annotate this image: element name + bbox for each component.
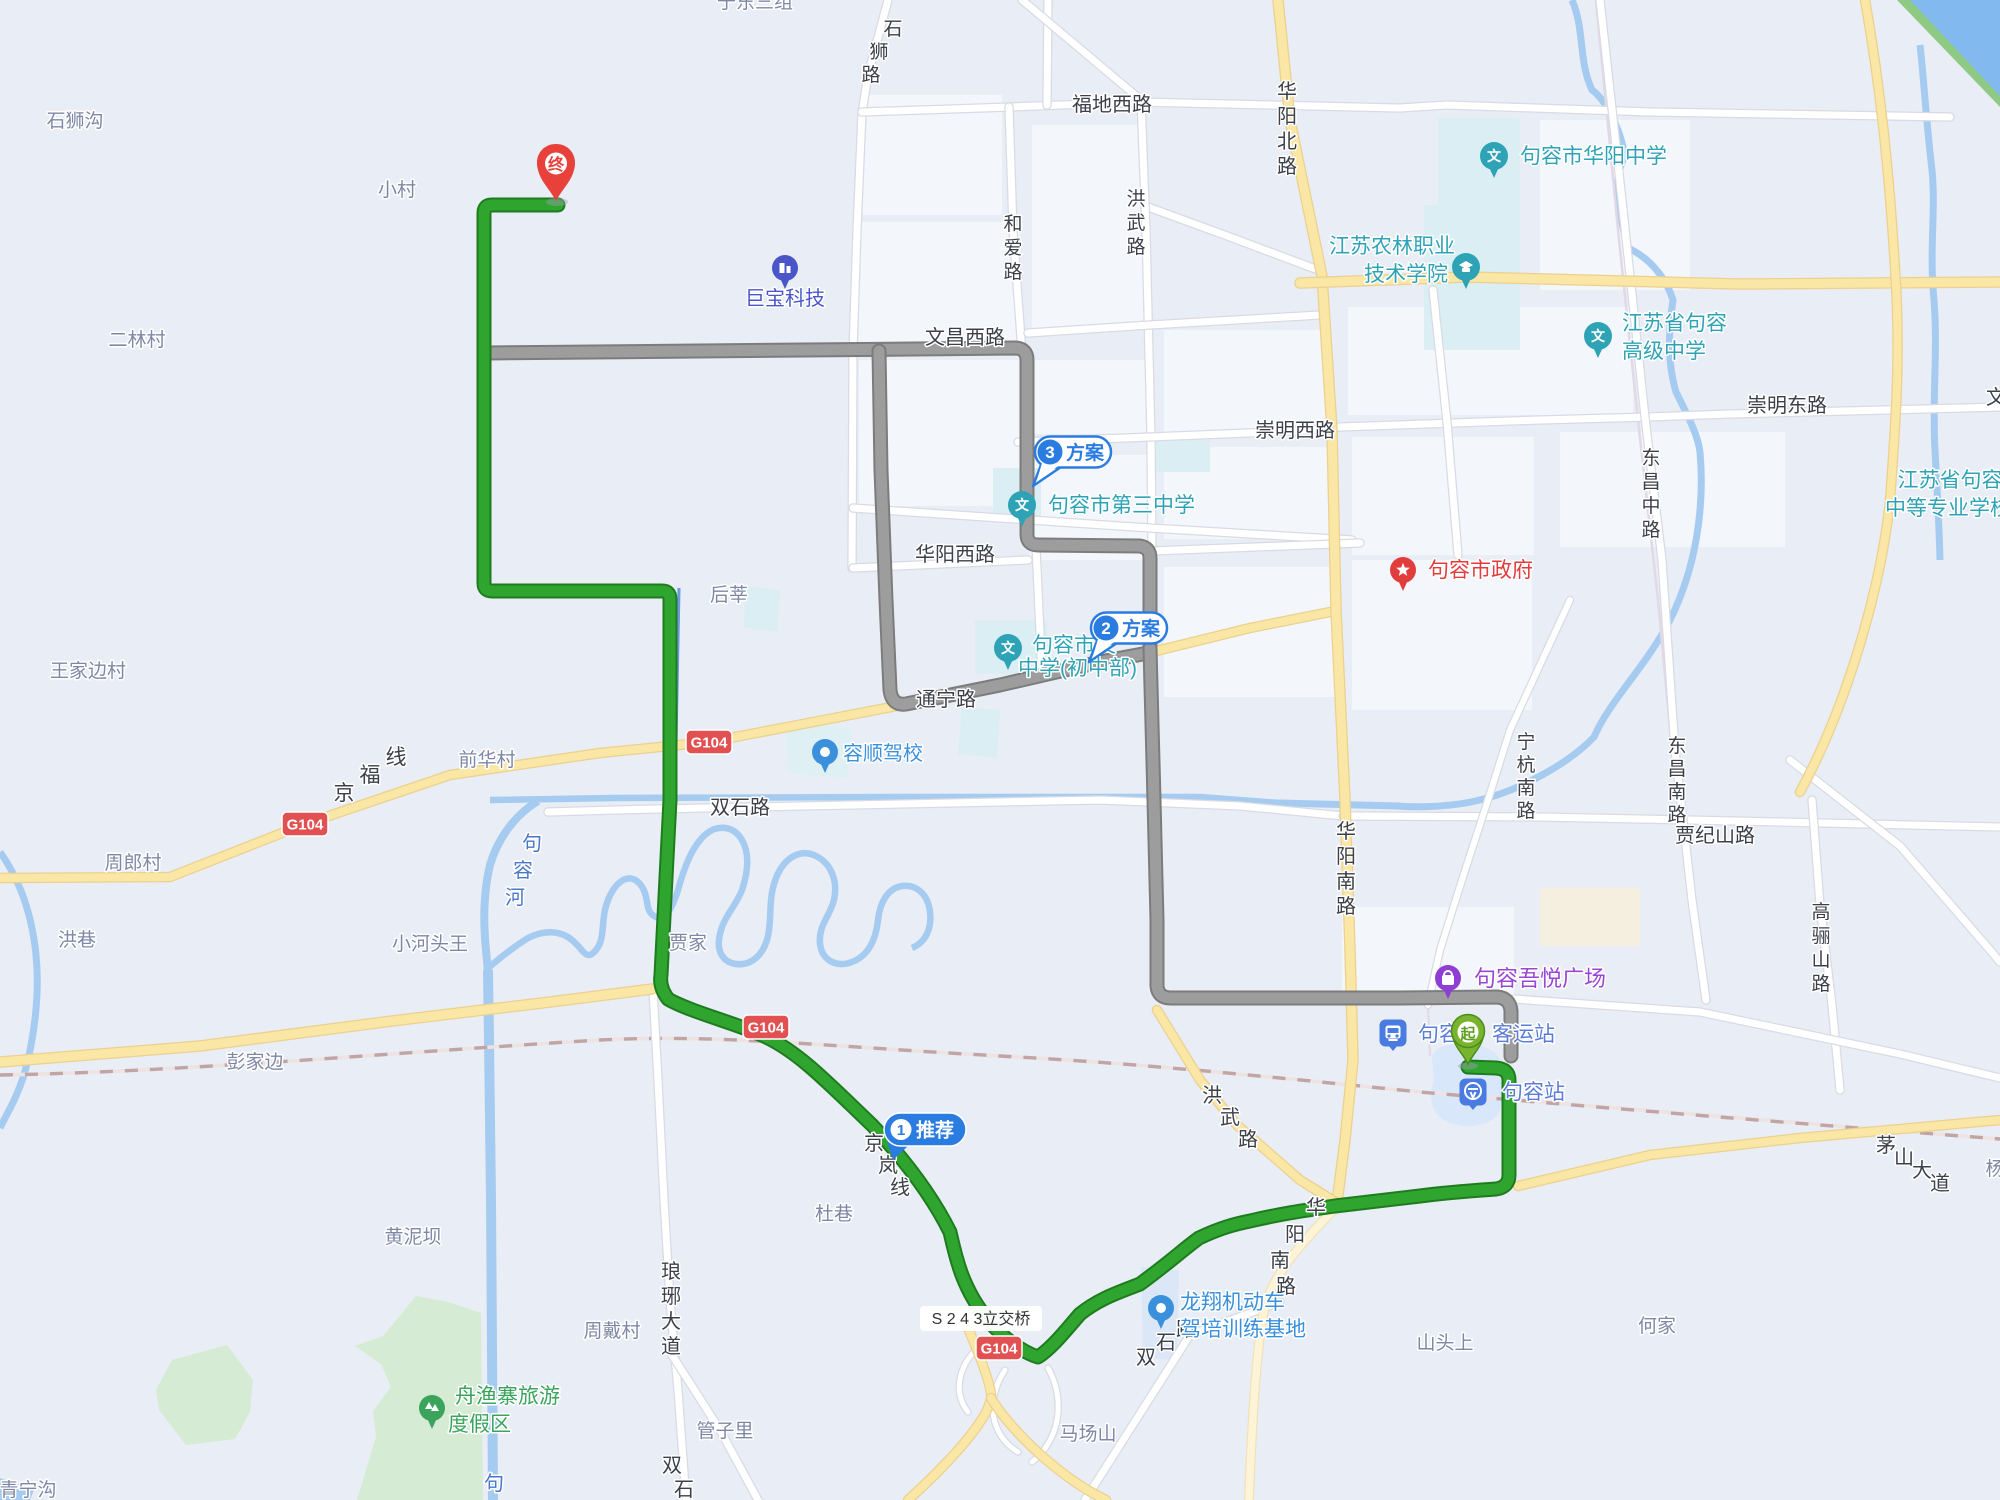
- svg-text:客运站: 客运站: [1492, 1023, 1555, 1046]
- svg-text:石狮沟: 石狮沟: [46, 110, 103, 132]
- svg-text:巨宝科技: 巨宝科技: [745, 287, 825, 310]
- svg-text:线: 线: [386, 746, 407, 769]
- svg-text:路: 路: [1126, 236, 1145, 258]
- svg-text:北: 北: [1277, 130, 1297, 153]
- svg-text:阳: 阳: [1336, 845, 1356, 868]
- svg-text:江苏省句容: 江苏省句容: [1898, 469, 2000, 492]
- svg-text:方案: 方案: [1122, 617, 1161, 640]
- svg-text:道: 道: [1930, 1172, 1950, 1195]
- svg-text:大: 大: [1912, 1159, 1932, 1182]
- svg-text:洪巷: 洪巷: [58, 929, 96, 951]
- svg-text:福: 福: [360, 764, 381, 787]
- svg-text:阳: 阳: [1285, 1223, 1305, 1246]
- svg-text:路: 路: [1238, 1128, 1258, 1151]
- svg-text:文昌西路: 文昌西路: [925, 326, 1005, 349]
- svg-text:马场山: 马场山: [1059, 1423, 1116, 1445]
- svg-text:中学(初中部): 中学(初中部): [1018, 657, 1137, 680]
- svg-text:昌: 昌: [1667, 759, 1686, 780]
- svg-text:中等专业学校: 中等专业学校: [1885, 497, 2000, 520]
- svg-text:后莘: 后莘: [710, 584, 748, 606]
- svg-text:路: 路: [1667, 804, 1686, 826]
- svg-text:华: 华: [1306, 1196, 1326, 1219]
- svg-text:和: 和: [1003, 213, 1022, 235]
- svg-text:洪: 洪: [1126, 188, 1145, 210]
- svg-text:华: 华: [1336, 820, 1356, 843]
- svg-text:山: 山: [1894, 1146, 1914, 1169]
- svg-text:文: 文: [1986, 386, 2000, 409]
- svg-text:王家边村: 王家边村: [50, 660, 126, 682]
- svg-text:技术学院: 技术学院: [1364, 263, 1448, 286]
- svg-text:双: 双: [1136, 1347, 1156, 1369]
- svg-text:昌: 昌: [1641, 472, 1660, 493]
- svg-text:崇明东路: 崇明东路: [1747, 394, 1827, 417]
- svg-text:石: 石: [883, 19, 902, 40]
- svg-text:南: 南: [1336, 870, 1356, 893]
- svg-text:山: 山: [1811, 949, 1830, 971]
- svg-text:洪: 洪: [1202, 1084, 1222, 1107]
- svg-text:路: 路: [1003, 261, 1022, 283]
- svg-text:华阳西路: 华阳西路: [915, 543, 995, 566]
- svg-text:高: 高: [1811, 901, 1830, 923]
- svg-text:文: 文: [1015, 497, 1030, 513]
- svg-text:句: 句: [522, 832, 542, 855]
- svg-text:双石路: 双石路: [710, 796, 770, 819]
- svg-text:琅: 琅: [661, 1260, 681, 1283]
- svg-text:推荐: 推荐: [916, 1119, 954, 1142]
- svg-text:句容吾悦广场: 句容吾悦广场: [1474, 966, 1606, 991]
- svg-text:2: 2: [1101, 619, 1110, 638]
- svg-text:句: 句: [484, 1472, 504, 1495]
- svg-text:黄泥坝: 黄泥坝: [384, 1226, 441, 1248]
- svg-text:终: 终: [548, 155, 565, 174]
- svg-text:石: 石: [1156, 1332, 1176, 1354]
- svg-text:3: 3: [1045, 443, 1054, 462]
- svg-text:G104: G104: [981, 1341, 1018, 1358]
- svg-text:南: 南: [1270, 1249, 1290, 1272]
- svg-text:崇明西路: 崇明西路: [1255, 419, 1335, 442]
- svg-text:路: 路: [1277, 155, 1297, 178]
- svg-text:双: 双: [662, 1455, 682, 1477]
- svg-text:骊: 骊: [1811, 926, 1830, 947]
- svg-text:线: 线: [890, 1176, 910, 1199]
- svg-text:南: 南: [1667, 781, 1686, 803]
- svg-text:文: 文: [1487, 148, 1502, 164]
- svg-text:句容市华阳中学: 句容市华阳中学: [1520, 145, 1667, 168]
- svg-text:大: 大: [661, 1310, 681, 1333]
- svg-text:山头上: 山头上: [1416, 1332, 1473, 1354]
- svg-text:路: 路: [1516, 800, 1535, 822]
- svg-text:度假区: 度假区: [448, 1413, 511, 1436]
- svg-text:路: 路: [861, 64, 880, 86]
- svg-text:周郎村: 周郎村: [104, 852, 161, 874]
- svg-text:中: 中: [1641, 495, 1660, 517]
- svg-text:句容市政府: 句容市政府: [1428, 559, 1533, 582]
- svg-text:琊: 琊: [661, 1285, 681, 1308]
- svg-text:华: 华: [1277, 80, 1297, 103]
- svg-text:道: 道: [661, 1335, 681, 1358]
- svg-text:东: 东: [1667, 735, 1686, 757]
- svg-text:管子里: 管子里: [696, 1420, 753, 1442]
- svg-text:彭家边: 彭家边: [226, 1051, 283, 1073]
- svg-text:南: 南: [1516, 777, 1535, 799]
- svg-text:爱: 爱: [1003, 237, 1022, 259]
- svg-text:周戴村: 周戴村: [583, 1320, 640, 1342]
- svg-text:阳: 阳: [1277, 105, 1297, 128]
- svg-text:福地西路: 福地西路: [1072, 93, 1152, 116]
- svg-text:江苏农林职业: 江苏农林职业: [1329, 235, 1455, 258]
- svg-text:江苏省句容: 江苏省句容: [1622, 312, 1727, 335]
- svg-text:二林村: 二林村: [108, 329, 165, 351]
- svg-text:G104: G104: [287, 817, 324, 834]
- svg-text:G104: G104: [691, 735, 728, 752]
- svg-text:武: 武: [1220, 1106, 1240, 1129]
- svg-text:容: 容: [513, 859, 533, 882]
- svg-text:贾家: 贾家: [669, 932, 707, 954]
- svg-text:高级中学: 高级中学: [1622, 340, 1706, 363]
- svg-text:句容站: 句容站: [1502, 1081, 1565, 1104]
- svg-text:小河头王: 小河头王: [392, 933, 468, 955]
- svg-text:石: 石: [674, 1479, 694, 1500]
- svg-text:前华村: 前华村: [458, 749, 515, 771]
- svg-text:京: 京: [334, 782, 355, 805]
- svg-text:容顺驾校: 容顺驾校: [843, 742, 923, 765]
- svg-text:G104: G104: [748, 1020, 785, 1037]
- svg-text:路: 路: [1641, 519, 1660, 541]
- svg-text:青宁沟: 青宁沟: [0, 1479, 57, 1500]
- svg-text:起: 起: [1459, 1026, 1476, 1043]
- svg-text:杨: 杨: [1985, 1158, 2000, 1180]
- svg-text:路: 路: [1336, 895, 1356, 918]
- svg-text:1: 1: [897, 1122, 905, 1139]
- svg-text:文: 文: [1001, 640, 1016, 656]
- svg-text:于东三组: 于东三组: [717, 0, 793, 13]
- svg-text:文: 文: [1591, 328, 1606, 344]
- svg-text:S 2 4 3立交桥: S 2 4 3立交桥: [932, 1310, 1031, 1328]
- svg-text:驾培训练基地: 驾培训练基地: [1180, 1318, 1306, 1341]
- svg-text:贾纪山路: 贾纪山路: [1675, 824, 1755, 847]
- svg-text:路: 路: [1811, 973, 1830, 995]
- svg-text:杭: 杭: [1516, 754, 1535, 776]
- svg-text:小村: 小村: [378, 179, 416, 201]
- svg-text:狮: 狮: [869, 41, 888, 63]
- svg-text:杜巷: 杜巷: [815, 1203, 853, 1225]
- svg-text:句容市第三中学: 句容市第三中学: [1048, 494, 1195, 517]
- svg-text:河: 河: [505, 886, 525, 909]
- svg-text:宁: 宁: [1516, 731, 1535, 753]
- svg-text:舟渔寨旅游: 舟渔寨旅游: [455, 1385, 560, 1408]
- svg-text:方案: 方案: [1066, 441, 1105, 464]
- svg-text:何家: 何家: [1638, 1315, 1676, 1337]
- svg-text:通宁路: 通宁路: [916, 688, 976, 711]
- svg-text:龙翔机动车: 龙翔机动车: [1180, 1291, 1285, 1314]
- svg-text:京: 京: [864, 1132, 884, 1155]
- svg-text:武: 武: [1126, 212, 1145, 234]
- svg-text:茅: 茅: [1876, 1134, 1896, 1157]
- svg-text:东: 东: [1641, 447, 1660, 469]
